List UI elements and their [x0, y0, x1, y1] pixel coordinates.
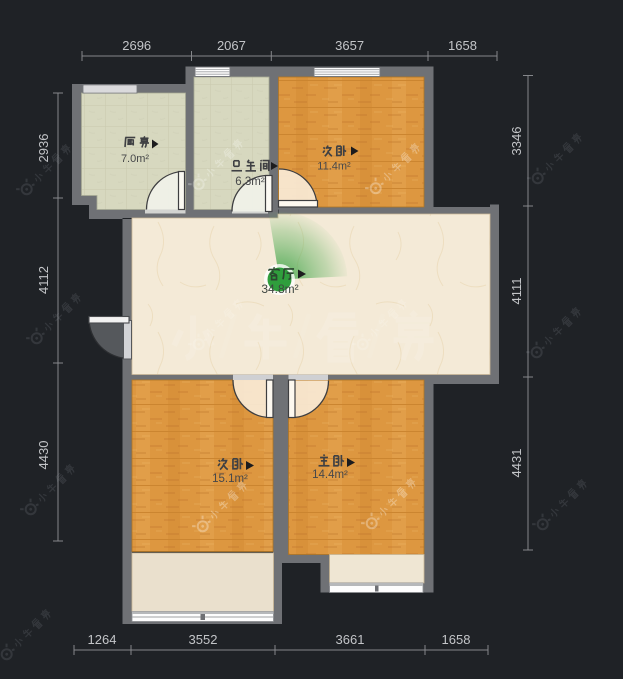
svg-text:2696: 2696 — [122, 38, 151, 53]
svg-text:3346: 3346 — [509, 127, 524, 156]
svg-text:3661: 3661 — [336, 632, 365, 647]
svg-text:4430: 4430 — [36, 441, 51, 470]
svg-text:1658: 1658 — [442, 632, 471, 647]
svg-text:7.0m²: 7.0m² — [121, 153, 149, 165]
svg-text:3552: 3552 — [189, 632, 218, 647]
svg-text:14.4m²: 14.4m² — [312, 469, 348, 481]
svg-text:4111: 4111 — [509, 278, 524, 305]
svg-text:2936: 2936 — [36, 134, 51, 163]
svg-text:11.4m²: 11.4m² — [317, 161, 351, 173]
svg-text:1658: 1658 — [448, 38, 477, 53]
svg-text:2067: 2067 — [217, 38, 246, 53]
svg-text:3657: 3657 — [335, 38, 364, 53]
svg-text:4431: 4431 — [509, 449, 524, 478]
svg-text:4112: 4112 — [36, 266, 51, 294]
svg-text:6.3m²: 6.3m² — [235, 176, 265, 188]
svg-text:1264: 1264 — [88, 632, 117, 647]
svg-text:34.8m²: 34.8m² — [261, 282, 298, 296]
